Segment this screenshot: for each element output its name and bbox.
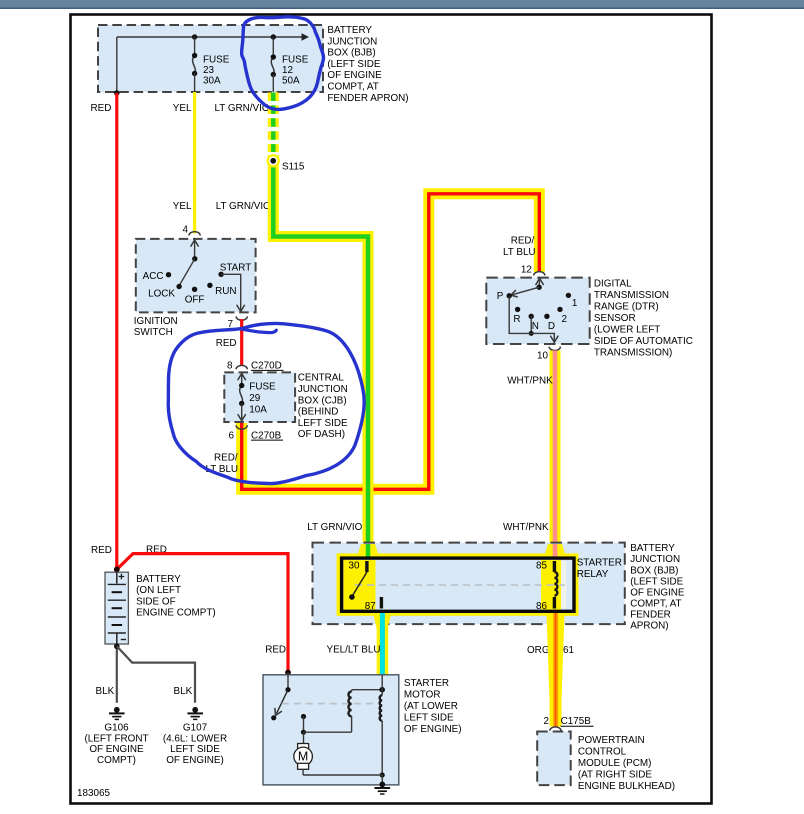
svg-text:1: 1 (572, 298, 578, 309)
svg-text:50A: 50A (282, 75, 300, 86)
svg-text:BOX (BJB): BOX (BJB) (327, 48, 375, 59)
svg-text:8: 8 (227, 361, 233, 372)
svg-text:85: 85 (536, 560, 547, 571)
svg-text:WHT/PNK: WHT/PNK (503, 522, 549, 533)
svg-text:STARTER: STARTER (404, 678, 449, 689)
svg-text:YEL/LT BLU: YEL/LT BLU (327, 645, 381, 656)
svg-text:FENDER: FENDER (630, 610, 671, 621)
svg-text:12: 12 (282, 65, 293, 76)
svg-text:BOX (CJB): BOX (CJB) (298, 395, 347, 406)
svg-text:LT GRN/VIO: LT GRN/VIO (215, 103, 270, 114)
svg-text:BOX (BJB): BOX (BJB) (630, 565, 678, 576)
svg-text:YEL: YEL (173, 201, 192, 212)
svg-text:IGNITION: IGNITION (134, 316, 178, 327)
svg-text:S115: S115 (282, 162, 305, 173)
svg-text:G106: G106 (104, 722, 129, 733)
svg-text:RED: RED (91, 103, 112, 114)
svg-text:LT GRN/VIO: LT GRN/VIO (216, 201, 271, 212)
svg-text:STARTER: STARTER (577, 558, 622, 569)
svg-text:FUSE: FUSE (282, 55, 309, 66)
svg-text:TRANSMISSION: TRANSMISSION (594, 290, 669, 301)
svg-text:183065: 183065 (77, 788, 110, 799)
svg-text:(AT RIGHT SIDE: (AT RIGHT SIDE (578, 770, 652, 781)
svg-text:(4.6L: LOWER: (4.6L: LOWER (163, 733, 227, 744)
svg-text:30: 30 (349, 560, 360, 571)
svg-text:R: R (513, 314, 520, 325)
svg-text:FENDER APRON): FENDER APRON) (327, 93, 408, 104)
svg-text:JUNCTION: JUNCTION (298, 384, 348, 395)
svg-text:OF ENGINE): OF ENGINE) (404, 724, 462, 735)
svg-text:LEFT SIDE: LEFT SIDE (298, 418, 348, 429)
svg-text:(AT LOWER: (AT LOWER (404, 701, 458, 712)
svg-text:LEFT SIDE: LEFT SIDE (404, 713, 454, 724)
svg-text:FUSE: FUSE (203, 55, 230, 66)
svg-text:RED/: RED/ (214, 453, 238, 464)
svg-text:M: M (298, 750, 308, 764)
svg-text:BLK: BLK (174, 686, 193, 697)
svg-text:29: 29 (249, 393, 260, 404)
svg-text:P: P (497, 291, 504, 302)
svg-text:2: 2 (562, 314, 568, 325)
svg-text:ACC: ACC (143, 271, 164, 282)
svg-text:D: D (548, 321, 555, 332)
svg-text:LEFT SIDE: LEFT SIDE (170, 744, 220, 755)
svg-text:JUNCTION: JUNCTION (327, 36, 377, 47)
svg-text:RED: RED (216, 338, 237, 349)
svg-text:RUN: RUN (215, 286, 236, 297)
svg-text:JUNCTION: JUNCTION (630, 554, 680, 565)
svg-text:(BEHIND: (BEHIND (298, 407, 339, 418)
svg-text:APRON): APRON) (630, 621, 668, 632)
svg-text:ENGINE BULKHEAD): ENGINE BULKHEAD) (578, 781, 675, 792)
svg-text:LT BLU: LT BLU (503, 247, 536, 258)
svg-text:LT GRN/VIO: LT GRN/VIO (307, 522, 362, 533)
svg-text:SWITCH: SWITCH (134, 327, 173, 338)
svg-text:RED: RED (91, 545, 112, 556)
svg-text:OF ENGINE): OF ENGINE) (166, 755, 224, 766)
svg-text:OFF: OFF (185, 294, 205, 305)
svg-text:SENSOR: SENSOR (594, 313, 636, 324)
svg-text:6: 6 (229, 431, 235, 442)
svg-text:(ON LEFT: (ON LEFT (136, 585, 181, 596)
svg-text:OF DASH): OF DASH) (298, 429, 345, 440)
svg-text:BLK: BLK (96, 686, 115, 697)
svg-text:OF ENGINE: OF ENGINE (327, 70, 382, 81)
svg-text:WHT/PNK: WHT/PNK (507, 376, 553, 387)
svg-text:23: 23 (203, 65, 214, 76)
svg-text:COMPT): COMPT) (97, 755, 136, 766)
svg-text:BATTERY: BATTERY (136, 574, 181, 585)
svg-text:4: 4 (183, 225, 189, 236)
svg-text:RED: RED (265, 645, 286, 656)
svg-text:12: 12 (521, 265, 532, 276)
svg-text:CENTRAL: CENTRAL (298, 373, 345, 384)
svg-text:ENGINE COMPT): ENGINE COMPT) (136, 608, 216, 619)
svg-text:ORG: ORG (527, 645, 550, 656)
svg-text:OF ENGINE: OF ENGINE (630, 587, 685, 598)
svg-text:RED/: RED/ (511, 236, 535, 247)
svg-text:(LOWER LEFT: (LOWER LEFT (594, 324, 660, 335)
svg-text:30A: 30A (203, 75, 221, 86)
svg-text:FUSE: FUSE (249, 382, 276, 393)
svg-text:N: N (532, 321, 539, 332)
svg-text:87: 87 (365, 601, 376, 612)
svg-text:COMPT, AT: COMPT, AT (630, 599, 681, 610)
svg-text:BATTERY: BATTERY (630, 543, 675, 554)
svg-text:POWERTRAIN: POWERTRAIN (578, 735, 645, 746)
svg-text:MODULE (PCM): MODULE (PCM) (578, 758, 652, 769)
svg-text:C270D: C270D (251, 361, 282, 372)
svg-text:C175B: C175B (561, 716, 592, 727)
svg-text:86: 86 (536, 601, 547, 612)
svg-text:CONTROL: CONTROL (578, 747, 627, 758)
svg-text:TRANSMISSION): TRANSMISSION) (594, 347, 672, 358)
svg-text:OF ENGINE: OF ENGINE (89, 744, 144, 755)
svg-text:2: 2 (544, 716, 550, 727)
svg-text:10A: 10A (249, 404, 267, 415)
svg-text:MOTOR: MOTOR (404, 690, 441, 701)
svg-text:START: START (220, 262, 251, 273)
svg-text:10: 10 (537, 350, 548, 361)
svg-text:(LEFT FRONT: (LEFT FRONT (84, 733, 148, 744)
svg-text:DIGITAL: DIGITAL (594, 278, 632, 289)
svg-text:(LEFT SIDE: (LEFT SIDE (630, 576, 683, 587)
svg-text:SIDE OF: SIDE OF (136, 596, 176, 607)
svg-text:COMPT, AT: COMPT, AT (327, 82, 378, 93)
svg-text:SIDE OF AUTOMATIC: SIDE OF AUTOMATIC (594, 336, 693, 347)
svg-text:RANGE (DTR): RANGE (DTR) (594, 301, 659, 312)
svg-text:BATTERY: BATTERY (327, 25, 372, 36)
svg-text:LOCK: LOCK (148, 289, 175, 300)
svg-text:RELAY: RELAY (577, 569, 609, 580)
svg-text:G107: G107 (183, 722, 207, 733)
svg-text:(LEFT SIDE: (LEFT SIDE (327, 59, 380, 70)
svg-text:YEL: YEL (173, 103, 192, 114)
